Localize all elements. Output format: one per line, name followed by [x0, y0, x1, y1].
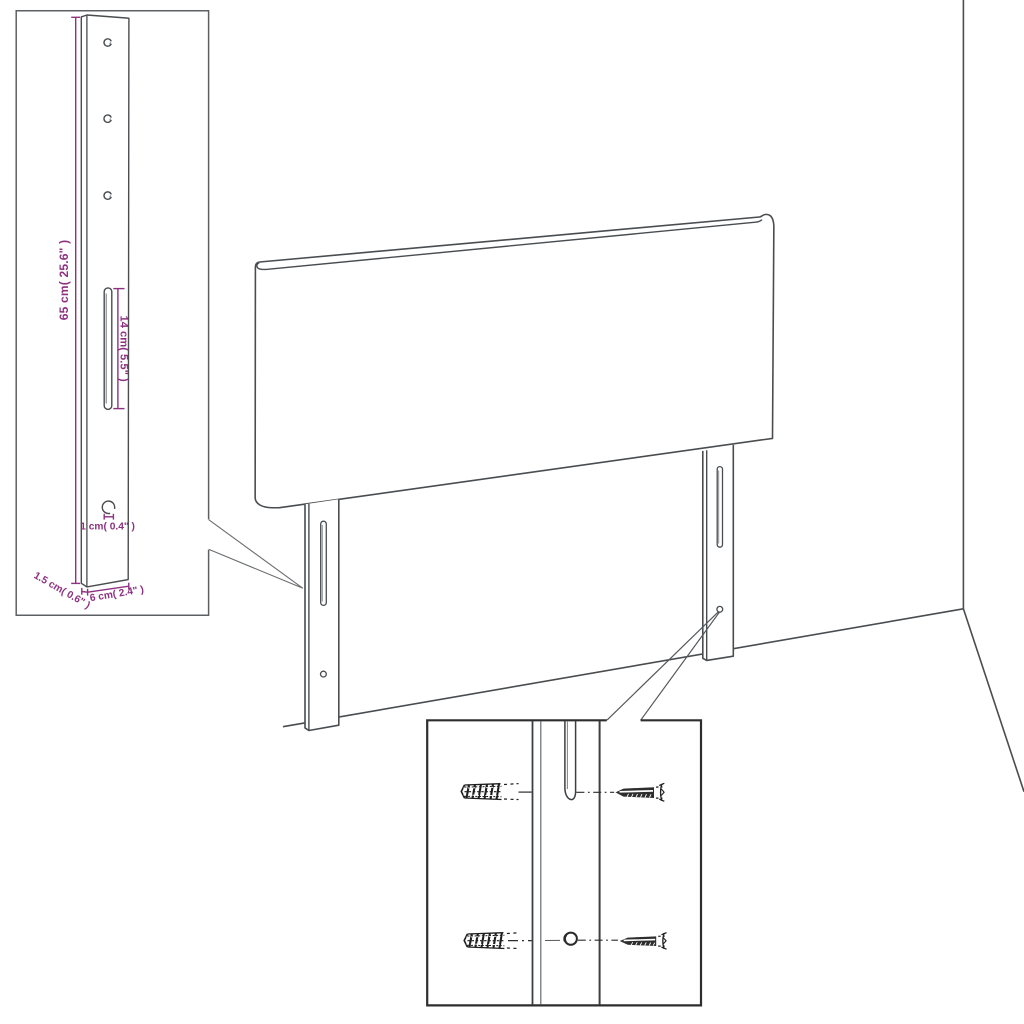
svg-text:65 cm( 25.6" ): 65 cm( 25.6" ) — [57, 240, 71, 321]
svg-text:14 cm( 5.5" ): 14 cm( 5.5" ) — [117, 315, 129, 382]
svg-text:1 cm( 0.4" ): 1 cm( 0.4" ) — [80, 521, 135, 532]
